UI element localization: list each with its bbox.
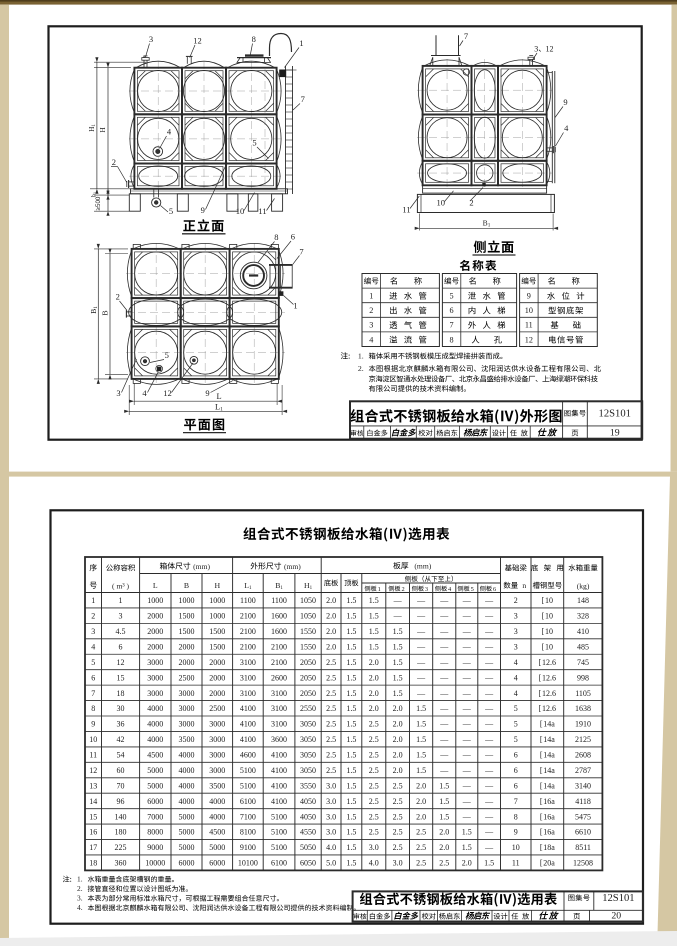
svg-text:3100: 3100 bbox=[271, 720, 287, 729]
svg-text:12S101: 12S101 bbox=[599, 408, 631, 419]
svg-text:1.5: 1.5 bbox=[416, 720, 426, 729]
svg-text:2.0: 2.0 bbox=[326, 612, 336, 621]
svg-text:—: — bbox=[416, 642, 426, 651]
svg-text:4100: 4100 bbox=[271, 751, 287, 760]
svg-text:3050: 3050 bbox=[300, 766, 316, 775]
svg-text:2.5: 2.5 bbox=[369, 828, 379, 837]
svg-text:—: — bbox=[439, 673, 449, 682]
svg-text:2.0: 2.0 bbox=[326, 642, 336, 651]
svg-text:4000: 4000 bbox=[179, 751, 195, 760]
svg-text:1.5: 1.5 bbox=[369, 596, 379, 605]
svg-text:—: — bbox=[439, 596, 449, 605]
svg-text:225: 225 bbox=[115, 843, 127, 852]
svg-text:2.0: 2.0 bbox=[326, 596, 336, 605]
svg-text:[ 14a: [ 14a bbox=[540, 781, 555, 790]
svg-text:3.0: 3.0 bbox=[393, 859, 403, 868]
svg-text:1.5: 1.5 bbox=[416, 704, 426, 713]
svg-text:5: 5 bbox=[252, 138, 256, 148]
svg-text:3500: 3500 bbox=[179, 735, 195, 744]
svg-text:3140: 3140 bbox=[575, 781, 591, 790]
svg-text:180: 180 bbox=[115, 828, 127, 837]
svg-text:1.5: 1.5 bbox=[346, 673, 356, 682]
svg-text:3100: 3100 bbox=[240, 673, 256, 682]
svg-text:—: — bbox=[484, 735, 494, 744]
svg-text:6000: 6000 bbox=[209, 859, 225, 868]
svg-text:2: 2 bbox=[116, 292, 120, 302]
svg-text:1500: 1500 bbox=[179, 627, 195, 636]
svg-text:3100: 3100 bbox=[240, 689, 256, 698]
svg-text:12: 12 bbox=[89, 766, 97, 775]
svg-text:14: 14 bbox=[89, 797, 97, 806]
svg-text:—: — bbox=[416, 596, 426, 605]
svg-text:[ 16a: [ 16a bbox=[540, 812, 555, 821]
svg-text:2.5: 2.5 bbox=[326, 766, 336, 775]
svg-text:1.5: 1.5 bbox=[346, 704, 356, 713]
svg-text:2.0: 2.0 bbox=[416, 781, 426, 790]
svg-text:1.5: 1.5 bbox=[346, 612, 356, 621]
svg-text:1105: 1105 bbox=[575, 689, 591, 698]
svg-text:3100: 3100 bbox=[240, 658, 256, 667]
svg-text:1.: 1. bbox=[77, 875, 83, 884]
svg-text:328: 328 bbox=[577, 612, 589, 621]
svg-text:2: 2 bbox=[91, 612, 95, 621]
svg-text:2.: 2. bbox=[77, 884, 83, 893]
svg-text:[ 10: [ 10 bbox=[542, 627, 553, 636]
svg-text:2: 2 bbox=[369, 306, 373, 315]
svg-text:10000: 10000 bbox=[145, 859, 165, 868]
svg-text:96: 96 bbox=[117, 797, 125, 806]
svg-text:1: 1 bbox=[378, 586, 381, 593]
svg-text:2.5: 2.5 bbox=[326, 658, 336, 667]
svg-text:—: — bbox=[439, 704, 449, 713]
svg-text:3550: 3550 bbox=[300, 781, 316, 790]
svg-text:—: — bbox=[462, 612, 472, 621]
svg-text:1050: 1050 bbox=[300, 596, 316, 605]
svg-text:—: — bbox=[462, 797, 472, 806]
svg-text:—: — bbox=[462, 735, 472, 744]
svg-text:3: 3 bbox=[514, 642, 518, 651]
svg-text:H: H bbox=[98, 127, 107, 133]
svg-text:4000: 4000 bbox=[209, 812, 225, 821]
svg-text:—: — bbox=[462, 658, 472, 667]
svg-text:5: 5 bbox=[169, 206, 173, 216]
svg-text:2.0: 2.0 bbox=[393, 735, 403, 744]
svg-text:1.5: 1.5 bbox=[462, 843, 472, 852]
svg-text:[ 16a: [ 16a bbox=[540, 797, 555, 806]
svg-text:2.5: 2.5 bbox=[369, 751, 379, 760]
svg-text:2.0: 2.0 bbox=[462, 859, 472, 868]
svg-text:—: — bbox=[416, 673, 426, 682]
svg-text:1.5: 1.5 bbox=[393, 673, 403, 682]
svg-text:—: — bbox=[462, 673, 472, 682]
svg-text:3000: 3000 bbox=[179, 689, 195, 698]
svg-text:1.5: 1.5 bbox=[346, 843, 356, 852]
svg-text:4: 4 bbox=[514, 658, 518, 667]
svg-text:1: 1 bbox=[91, 596, 95, 605]
svg-text:2.0: 2.0 bbox=[369, 658, 379, 667]
svg-text:9: 9 bbox=[514, 828, 518, 837]
svg-text:1910: 1910 bbox=[575, 720, 591, 729]
svg-text:6: 6 bbox=[514, 781, 518, 790]
svg-text:10: 10 bbox=[236, 206, 245, 216]
svg-text:2000: 2000 bbox=[209, 658, 225, 667]
svg-text:5000: 5000 bbox=[209, 843, 225, 852]
svg-text:—: — bbox=[484, 797, 494, 806]
svg-text:—: — bbox=[484, 658, 494, 667]
svg-text:9000: 9000 bbox=[147, 843, 163, 852]
svg-text:8511: 8511 bbox=[575, 843, 591, 852]
svg-text:—: — bbox=[484, 673, 494, 682]
svg-text:( m³ ): ( m³ ) bbox=[112, 582, 130, 591]
svg-text:2.5: 2.5 bbox=[369, 781, 379, 790]
svg-text:3: 3 bbox=[149, 34, 153, 44]
svg-text:6: 6 bbox=[450, 306, 454, 315]
svg-text:2.5: 2.5 bbox=[416, 859, 426, 868]
svg-text:—: — bbox=[484, 828, 494, 837]
svg-text:3000: 3000 bbox=[209, 751, 225, 760]
svg-text:7: 7 bbox=[514, 797, 518, 806]
svg-text:17: 17 bbox=[89, 843, 97, 852]
svg-text:—: — bbox=[416, 627, 426, 636]
svg-text:(mm): (mm) bbox=[284, 562, 301, 571]
svg-text:h1: h1 bbox=[92, 191, 98, 197]
svg-text:15: 15 bbox=[117, 673, 125, 682]
svg-text:—: — bbox=[462, 704, 472, 713]
svg-text:1000: 1000 bbox=[209, 612, 225, 621]
svg-text:6: 6 bbox=[91, 673, 95, 682]
svg-text:4500: 4500 bbox=[209, 828, 225, 837]
svg-text:[ 18a: [ 18a bbox=[540, 843, 555, 852]
svg-text:1.5: 1.5 bbox=[369, 627, 379, 636]
svg-text:[ 12.6: [ 12.6 bbox=[539, 673, 556, 682]
svg-text:2.5: 2.5 bbox=[393, 828, 403, 837]
svg-text:3.: 3. bbox=[77, 894, 83, 903]
svg-text:1.5: 1.5 bbox=[393, 642, 403, 651]
svg-text:2100: 2100 bbox=[240, 627, 256, 636]
svg-text:4.0: 4.0 bbox=[369, 859, 379, 868]
svg-text:12: 12 bbox=[525, 335, 533, 344]
svg-text:10: 10 bbox=[89, 735, 97, 744]
svg-text:54: 54 bbox=[117, 751, 125, 760]
svg-text:2100: 2100 bbox=[240, 642, 256, 651]
svg-text:7: 7 bbox=[299, 247, 303, 257]
svg-text:2550: 2550 bbox=[300, 704, 316, 713]
svg-text:—: — bbox=[484, 720, 494, 729]
svg-text:2.5: 2.5 bbox=[326, 704, 336, 713]
svg-text:7: 7 bbox=[91, 689, 95, 698]
svg-text:4: 4 bbox=[91, 642, 95, 651]
svg-text:—: — bbox=[439, 612, 449, 621]
svg-text:—: — bbox=[484, 766, 494, 775]
svg-text:—: — bbox=[484, 751, 494, 760]
svg-text:6610: 6610 bbox=[575, 828, 591, 837]
svg-text:4.: 4. bbox=[77, 903, 83, 912]
svg-text:—: — bbox=[462, 781, 472, 790]
svg-text:3: 3 bbox=[116, 388, 120, 398]
svg-text:—: — bbox=[416, 612, 426, 621]
svg-text:2100: 2100 bbox=[271, 642, 287, 651]
svg-text:[ 14a: [ 14a bbox=[540, 751, 555, 760]
svg-text:1: 1 bbox=[119, 596, 123, 605]
svg-text:3000: 3000 bbox=[147, 658, 163, 667]
svg-text:1: 1 bbox=[369, 292, 373, 301]
svg-text:4.0: 4.0 bbox=[326, 843, 336, 852]
svg-text:140: 140 bbox=[115, 812, 127, 821]
svg-text:—: — bbox=[484, 689, 494, 698]
svg-text:1600: 1600 bbox=[271, 612, 287, 621]
svg-text:1.5: 1.5 bbox=[393, 658, 403, 667]
svg-text:10: 10 bbox=[436, 198, 445, 208]
svg-text:—: — bbox=[439, 627, 449, 636]
svg-text:360: 360 bbox=[115, 859, 127, 868]
svg-text:12S101: 12S101 bbox=[602, 893, 634, 904]
svg-text:10100: 10100 bbox=[238, 859, 258, 868]
svg-text:11: 11 bbox=[512, 859, 520, 868]
svg-text:2.0: 2.0 bbox=[393, 704, 403, 713]
svg-text:9100: 9100 bbox=[240, 843, 256, 852]
svg-text:4100: 4100 bbox=[240, 704, 256, 713]
svg-text:[ 14a: [ 14a bbox=[540, 735, 555, 744]
svg-text:—: — bbox=[439, 642, 449, 651]
svg-text:7: 7 bbox=[301, 94, 305, 104]
svg-text:4000: 4000 bbox=[147, 704, 163, 713]
svg-text:2125: 2125 bbox=[575, 735, 591, 744]
svg-text:2100: 2100 bbox=[240, 612, 256, 621]
svg-text:1.5: 1.5 bbox=[416, 766, 426, 775]
svg-text:1000: 1000 bbox=[147, 596, 163, 605]
svg-text:4050: 4050 bbox=[300, 812, 316, 821]
svg-text:2.0: 2.0 bbox=[416, 797, 426, 806]
svg-text:2.0: 2.0 bbox=[369, 689, 379, 698]
svg-text:1.5: 1.5 bbox=[416, 735, 426, 744]
svg-text:≥500: ≥500 bbox=[95, 196, 102, 210]
svg-text:[ 20a: [ 20a bbox=[540, 859, 555, 868]
svg-text:—: — bbox=[484, 627, 494, 636]
svg-text:9: 9 bbox=[91, 720, 95, 729]
svg-text:2.: 2. bbox=[358, 364, 364, 373]
svg-text:—: — bbox=[439, 658, 449, 667]
svg-text:—: — bbox=[462, 720, 472, 729]
svg-text:[ 10: [ 10 bbox=[542, 612, 553, 621]
svg-text:60: 60 bbox=[117, 766, 125, 775]
svg-text:3: 3 bbox=[91, 627, 95, 636]
svg-text:2.5: 2.5 bbox=[393, 797, 403, 806]
svg-text:745: 745 bbox=[577, 658, 589, 667]
svg-text:2608: 2608 bbox=[575, 751, 591, 760]
svg-text:4500: 4500 bbox=[147, 751, 163, 760]
svg-text:n: n bbox=[522, 581, 526, 590]
svg-text:2.0: 2.0 bbox=[393, 766, 403, 775]
svg-text:5: 5 bbox=[514, 735, 518, 744]
svg-text:42: 42 bbox=[117, 735, 125, 744]
svg-text:1.5: 1.5 bbox=[346, 627, 356, 636]
svg-text:2600: 2600 bbox=[271, 673, 287, 682]
svg-text:L: L bbox=[153, 581, 158, 590]
svg-text:4000: 4000 bbox=[179, 797, 195, 806]
svg-text:12: 12 bbox=[117, 658, 125, 667]
svg-text:1.5: 1.5 bbox=[346, 828, 356, 837]
svg-text:3000: 3000 bbox=[179, 704, 195, 713]
svg-text:13: 13 bbox=[89, 781, 97, 790]
svg-text:2500: 2500 bbox=[179, 673, 195, 682]
svg-text:2.5: 2.5 bbox=[393, 781, 403, 790]
svg-text:—: — bbox=[462, 596, 472, 605]
svg-text:1.5: 1.5 bbox=[416, 751, 426, 760]
svg-text:8100: 8100 bbox=[240, 828, 256, 837]
svg-text:1600: 1600 bbox=[271, 627, 287, 636]
svg-text:2.0: 2.0 bbox=[369, 673, 379, 682]
svg-text:3100: 3100 bbox=[271, 704, 287, 713]
svg-text:5000: 5000 bbox=[147, 781, 163, 790]
svg-text:19: 19 bbox=[610, 427, 620, 438]
svg-text:1.5: 1.5 bbox=[346, 751, 356, 760]
svg-text:4600: 4600 bbox=[240, 751, 256, 760]
svg-text:10: 10 bbox=[512, 843, 520, 852]
svg-text:—: — bbox=[462, 627, 472, 636]
svg-text:[ 12.6: [ 12.6 bbox=[539, 704, 556, 713]
svg-text:2: 2 bbox=[401, 586, 404, 593]
svg-text:4100: 4100 bbox=[240, 735, 256, 744]
svg-text:4: 4 bbox=[514, 673, 518, 682]
svg-text:3000: 3000 bbox=[147, 689, 163, 698]
svg-text:11: 11 bbox=[258, 206, 266, 216]
svg-text:1.5: 1.5 bbox=[346, 642, 356, 651]
svg-text:2.5: 2.5 bbox=[369, 812, 379, 821]
svg-text:4000: 4000 bbox=[147, 735, 163, 744]
svg-text:3: 3 bbox=[369, 321, 373, 330]
svg-text:4100: 4100 bbox=[271, 766, 287, 775]
svg-text:4: 4 bbox=[514, 689, 518, 698]
svg-text:5000: 5000 bbox=[147, 766, 163, 775]
svg-text:—: — bbox=[484, 812, 494, 821]
svg-text:11: 11 bbox=[89, 751, 97, 760]
svg-text:[ 12.6: [ 12.6 bbox=[539, 658, 556, 667]
svg-text:4118: 4118 bbox=[575, 797, 591, 806]
svg-text:9: 9 bbox=[205, 388, 209, 398]
svg-text:3500: 3500 bbox=[209, 781, 225, 790]
svg-text:3: 3 bbox=[514, 627, 518, 636]
svg-text:2.5: 2.5 bbox=[393, 812, 403, 821]
svg-text:2.5: 2.5 bbox=[326, 689, 336, 698]
svg-text:6100: 6100 bbox=[240, 797, 256, 806]
svg-text:(mm): (mm) bbox=[414, 562, 431, 571]
svg-text:3000: 3000 bbox=[147, 673, 163, 682]
svg-text:7: 7 bbox=[464, 31, 468, 41]
svg-text:12: 12 bbox=[546, 44, 554, 53]
svg-text:1.: 1. bbox=[358, 351, 364, 360]
svg-text:10: 10 bbox=[525, 306, 533, 315]
svg-text:—: — bbox=[393, 596, 403, 605]
svg-text:70: 70 bbox=[117, 781, 125, 790]
svg-text:3100: 3100 bbox=[271, 689, 287, 698]
svg-text:1500: 1500 bbox=[209, 642, 225, 651]
svg-text:2: 2 bbox=[514, 596, 518, 605]
svg-text:410: 410 bbox=[577, 627, 589, 636]
svg-text:B: B bbox=[184, 581, 189, 590]
svg-text:7100: 7100 bbox=[240, 812, 256, 821]
svg-text:—: — bbox=[484, 612, 494, 621]
svg-text:7000: 7000 bbox=[147, 812, 163, 821]
svg-text:3000: 3000 bbox=[209, 735, 225, 744]
svg-text:1638: 1638 bbox=[575, 704, 591, 713]
svg-text:2000: 2000 bbox=[147, 642, 163, 651]
svg-text:—: — bbox=[416, 658, 426, 667]
svg-text:1.5: 1.5 bbox=[484, 859, 494, 868]
svg-text:2.5: 2.5 bbox=[326, 751, 336, 760]
svg-text:2.5: 2.5 bbox=[369, 735, 379, 744]
svg-text:2.0: 2.0 bbox=[393, 720, 403, 729]
svg-text:4100: 4100 bbox=[271, 781, 287, 790]
svg-text:—: — bbox=[393, 612, 403, 621]
svg-text:—: — bbox=[462, 812, 472, 821]
svg-text:3: 3 bbox=[119, 612, 123, 621]
svg-text:3: 3 bbox=[534, 44, 538, 53]
svg-text:485: 485 bbox=[577, 642, 589, 651]
svg-text:1.5: 1.5 bbox=[439, 812, 449, 821]
svg-text:5000: 5000 bbox=[179, 828, 195, 837]
svg-text:6: 6 bbox=[514, 766, 518, 775]
svg-text:1000: 1000 bbox=[179, 596, 195, 605]
svg-text:2.5: 2.5 bbox=[326, 735, 336, 744]
svg-text:2050: 2050 bbox=[300, 689, 316, 698]
svg-text:8: 8 bbox=[450, 335, 454, 344]
svg-text:1.5: 1.5 bbox=[346, 735, 356, 744]
svg-text:6: 6 bbox=[119, 642, 123, 651]
svg-text:12: 12 bbox=[193, 36, 202, 46]
svg-text:2.5: 2.5 bbox=[369, 720, 379, 729]
svg-text:5000: 5000 bbox=[179, 843, 195, 852]
svg-text:2.0: 2.0 bbox=[416, 812, 426, 821]
svg-text:7: 7 bbox=[450, 321, 454, 330]
svg-text:2.5: 2.5 bbox=[326, 720, 336, 729]
svg-text:2.0: 2.0 bbox=[439, 843, 449, 852]
svg-text:2: 2 bbox=[112, 157, 116, 167]
svg-text:12508: 12508 bbox=[573, 859, 593, 868]
svg-text:4.5: 4.5 bbox=[116, 627, 126, 636]
svg-text:4550: 4550 bbox=[300, 828, 316, 837]
svg-text:3050: 3050 bbox=[300, 751, 316, 760]
svg-text:4: 4 bbox=[369, 335, 373, 344]
svg-text:2.5: 2.5 bbox=[416, 843, 426, 852]
svg-text:5000: 5000 bbox=[179, 812, 195, 821]
svg-text:2.5: 2.5 bbox=[439, 859, 449, 868]
svg-text:2.5: 2.5 bbox=[369, 797, 379, 806]
svg-text:[ 14a: [ 14a bbox=[540, 766, 555, 775]
svg-text:3000: 3000 bbox=[179, 720, 195, 729]
svg-text:1.5: 1.5 bbox=[369, 642, 379, 651]
svg-text:2.5: 2.5 bbox=[416, 828, 426, 837]
svg-text:6100: 6100 bbox=[271, 859, 287, 868]
svg-text:3600: 3600 bbox=[271, 735, 287, 744]
svg-text:5050: 5050 bbox=[300, 843, 316, 852]
svg-text:2100: 2100 bbox=[271, 658, 287, 667]
svg-text:—: — bbox=[462, 766, 472, 775]
svg-text:1.5: 1.5 bbox=[393, 689, 403, 698]
svg-text:[ 14a: [ 14a bbox=[540, 720, 555, 729]
svg-text:2.0: 2.0 bbox=[393, 751, 403, 760]
svg-text:3000: 3000 bbox=[209, 766, 225, 775]
svg-text:1: 1 bbox=[293, 301, 297, 311]
svg-text:2000: 2000 bbox=[147, 612, 163, 621]
svg-text:—: — bbox=[439, 720, 449, 729]
svg-text:2050: 2050 bbox=[300, 658, 316, 667]
svg-text:—: — bbox=[439, 766, 449, 775]
svg-text:—: — bbox=[484, 781, 494, 790]
svg-text:11: 11 bbox=[402, 205, 410, 215]
svg-text:5: 5 bbox=[91, 658, 95, 667]
svg-text:1.5: 1.5 bbox=[346, 812, 356, 821]
svg-text:20: 20 bbox=[611, 911, 621, 922]
